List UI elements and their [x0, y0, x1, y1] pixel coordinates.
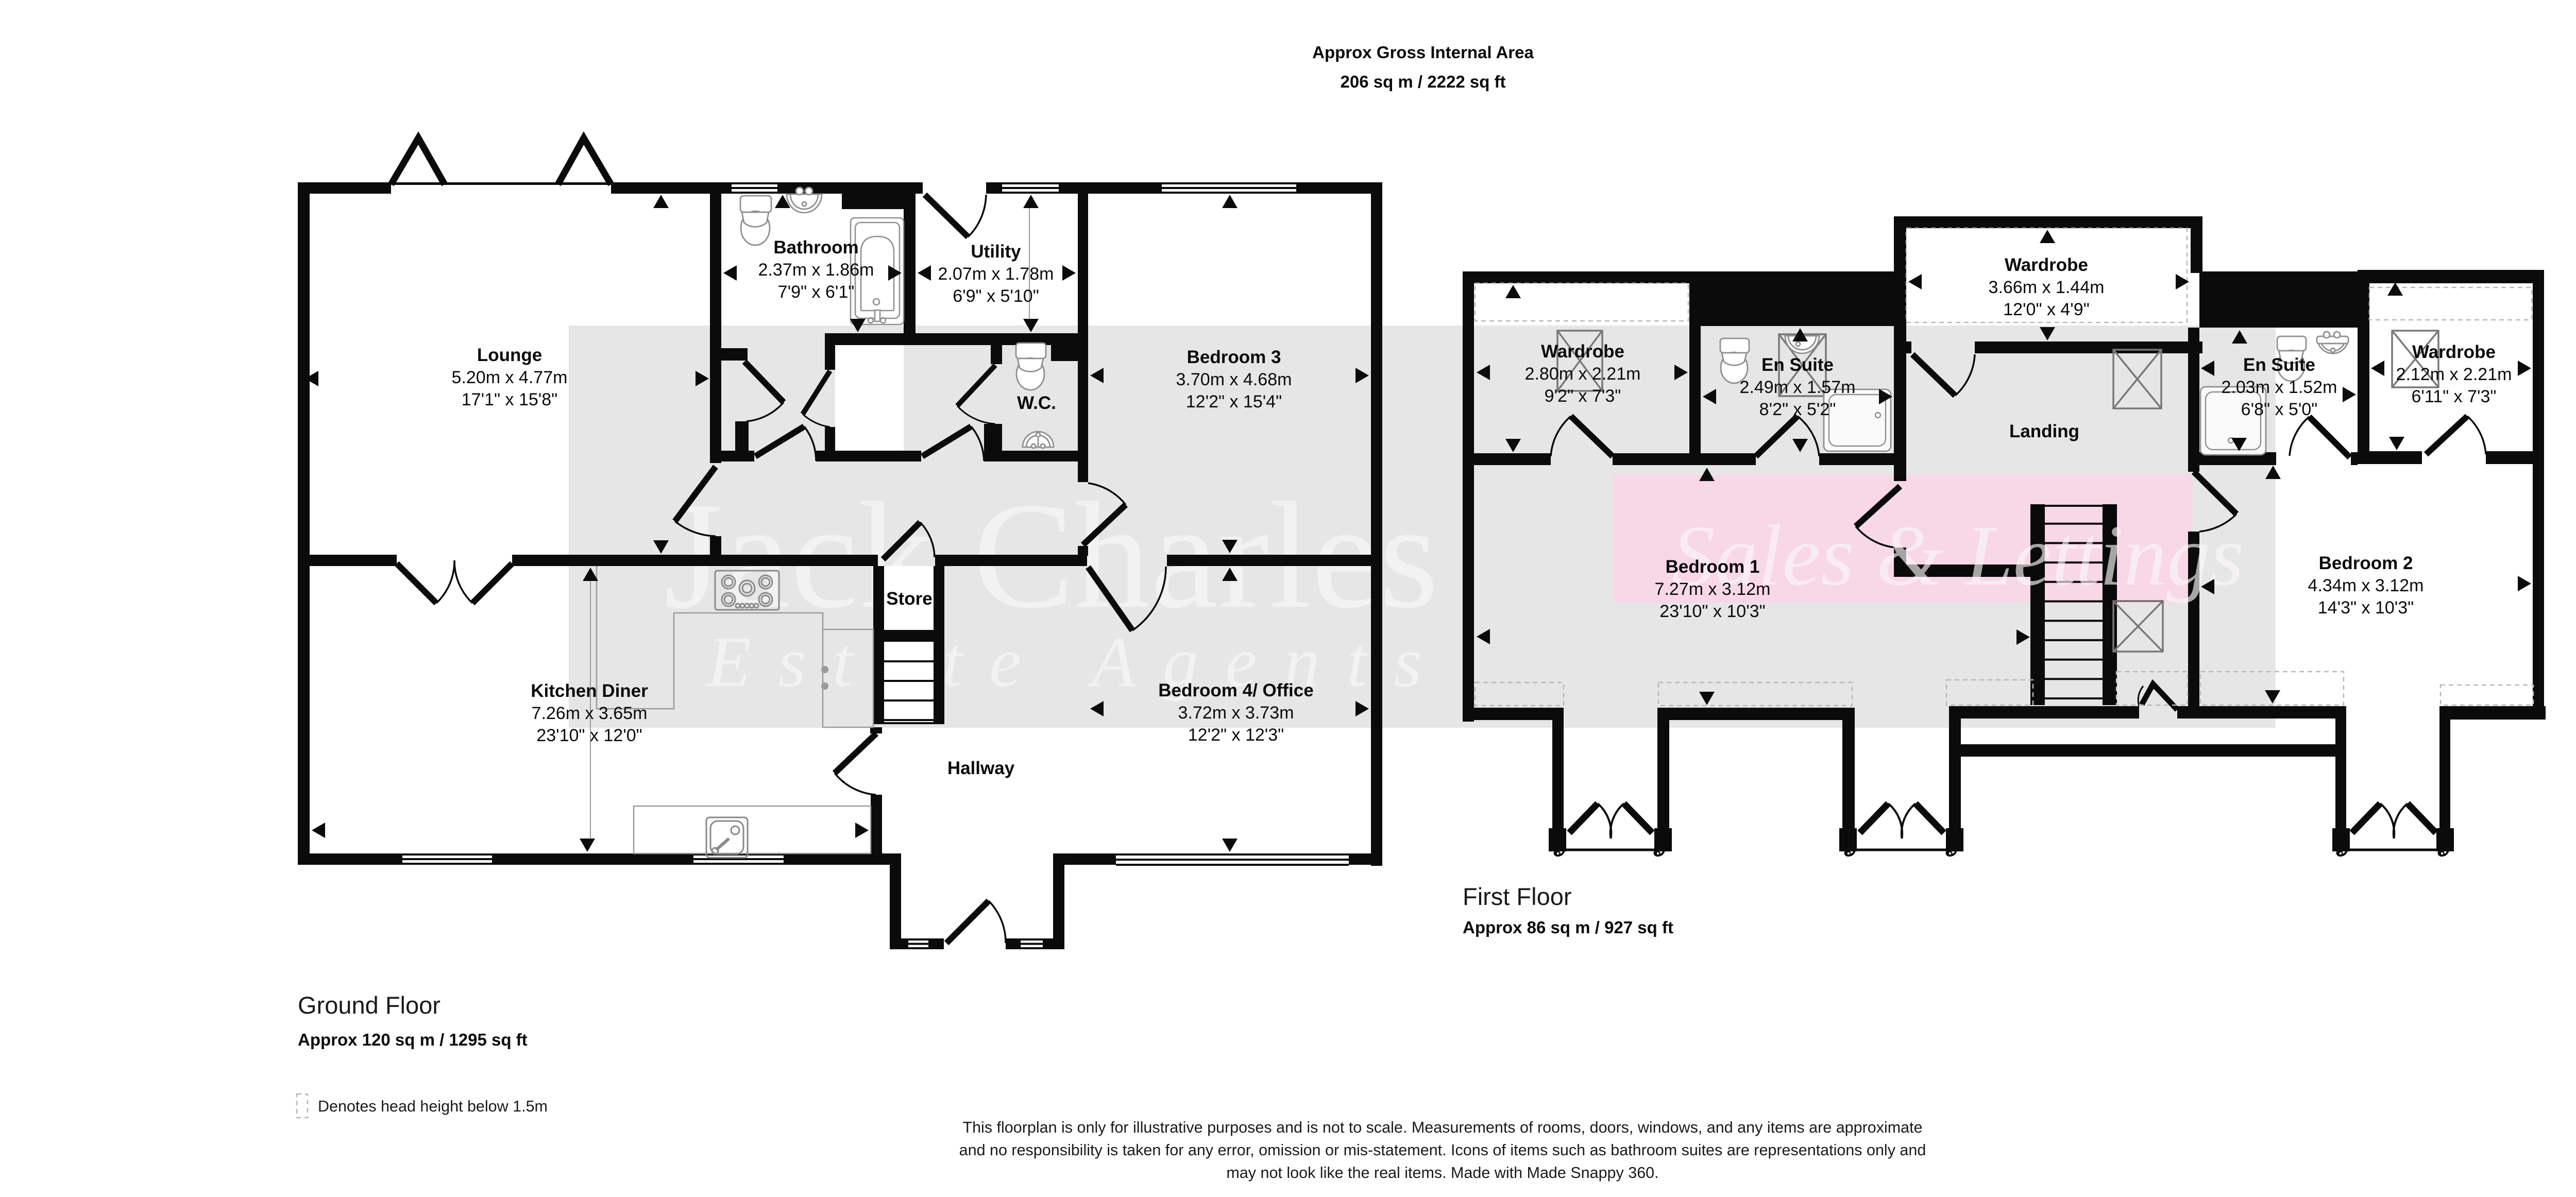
svg-text:Denotes head height below 1.5m: Denotes head height below 1.5m [318, 1098, 548, 1115]
svg-text:may not look like the real ite: may not look like the real items. Made w… [1226, 1164, 1658, 1182]
svg-text:Approx 86 sq m / 927 sq ft: Approx 86 sq m / 927 sq ft [1463, 918, 1673, 937]
svg-text:Bedroom 4/ Office: Bedroom 4/ Office [1158, 680, 1313, 700]
svg-text:12'0" x 4'9": 12'0" x 4'9" [2003, 300, 2090, 319]
svg-text:206 sq m / 2222 sq ft: 206 sq m / 2222 sq ft [1341, 72, 1506, 91]
svg-text:Approx 120 sq m / 1295 sq ft: Approx 120 sq m / 1295 sq ft [298, 1030, 528, 1049]
svg-text:12'2" x 15'4": 12'2" x 15'4" [1186, 392, 1282, 412]
svg-text:Wardrobe: Wardrobe [2005, 255, 2088, 275]
svg-text:En Suite: En Suite [1761, 355, 1834, 375]
svg-text:7.27m x 3.12m: 7.27m x 3.12m [1655, 579, 1771, 599]
svg-text:First Floor: First Floor [1463, 883, 1572, 910]
svg-text:Estate Agents: Estate Agents [706, 622, 1448, 702]
svg-text:and no responsibility is taken: and no responsibility is taken for any e… [959, 1141, 1926, 1159]
svg-text:En Suite: En Suite [2243, 355, 2315, 375]
svg-text:8'2" x 5'2": 8'2" x 5'2" [1759, 400, 1836, 419]
svg-text:Bathroom: Bathroom [773, 237, 858, 258]
svg-text:14'3" x 10'3": 14'3" x 10'3" [2318, 598, 2414, 618]
svg-text:2.37m x 1.86m: 2.37m x 1.86m [758, 260, 874, 280]
svg-text:6'11" x 7'3": 6'11" x 7'3" [2411, 387, 2496, 406]
svg-text:2.12m x 2.21m: 2.12m x 2.21m [2396, 365, 2512, 384]
svg-text:2.07m x 1.78m: 2.07m x 1.78m [938, 264, 1054, 284]
svg-text:6'9" x 5'10": 6'9" x 5'10" [953, 286, 1039, 306]
svg-text:3.70m x 4.68m: 3.70m x 4.68m [1176, 370, 1292, 389]
svg-text:Bedroom 1: Bedroom 1 [1666, 557, 1760, 577]
svg-text:Bedroom 3: Bedroom 3 [1187, 347, 1281, 367]
svg-text:This floorplan is only for ill: This floorplan is only for illustrative … [962, 1119, 1922, 1136]
svg-text:9'2" x 7'3": 9'2" x 7'3" [1545, 386, 1621, 406]
svg-text:Kitchen Diner: Kitchen Diner [531, 681, 648, 701]
svg-text:Hallway: Hallway [947, 758, 1015, 778]
svg-text:Ground Floor: Ground Floor [298, 991, 440, 1019]
svg-text:Lounge: Lounge [477, 345, 542, 365]
svg-text:2.49m x 1.57m: 2.49m x 1.57m [1740, 378, 1856, 397]
svg-text:Landing: Landing [2009, 421, 2079, 441]
svg-text:Utility: Utility [971, 242, 1021, 262]
svg-text:3.66m x 1.44m: 3.66m x 1.44m [1989, 278, 2105, 297]
svg-text:7'9" x 6'1": 7'9" x 6'1" [778, 282, 855, 302]
svg-text:12'2" x 12'3": 12'2" x 12'3" [1188, 725, 1284, 745]
svg-text:Wardrobe: Wardrobe [2412, 342, 2496, 362]
svg-text:23'10" x 12'0": 23'10" x 12'0" [536, 726, 642, 745]
svg-text:2.80m x 2.21m: 2.80m x 2.21m [1525, 364, 1641, 384]
svg-text:2.03m x 1.52m: 2.03m x 1.52m [2222, 378, 2337, 397]
svg-text:Bedroom 2: Bedroom 2 [2319, 553, 2413, 573]
svg-text:7.26m x 3.65m: 7.26m x 3.65m [532, 704, 648, 723]
svg-text:Wardrobe: Wardrobe [1541, 341, 1624, 362]
svg-text:W.C.: W.C. [1017, 393, 1056, 413]
svg-text:Approx Gross Internal Area: Approx Gross Internal Area [1312, 43, 1534, 62]
svg-text:17'1" x 15'8": 17'1" x 15'8" [462, 390, 557, 409]
svg-text:4.34m x 3.12m: 4.34m x 3.12m [2308, 576, 2424, 595]
svg-text:23'10" x 10'3": 23'10" x 10'3" [1659, 602, 1765, 621]
svg-text:5.20m x 4.77m: 5.20m x 4.77m [452, 368, 568, 387]
svg-text:6'8" x 5'0": 6'8" x 5'0" [2241, 400, 2318, 419]
svg-text:Store: Store [886, 589, 932, 609]
svg-text:3.72m x 3.73m: 3.72m x 3.73m [1178, 703, 1294, 723]
